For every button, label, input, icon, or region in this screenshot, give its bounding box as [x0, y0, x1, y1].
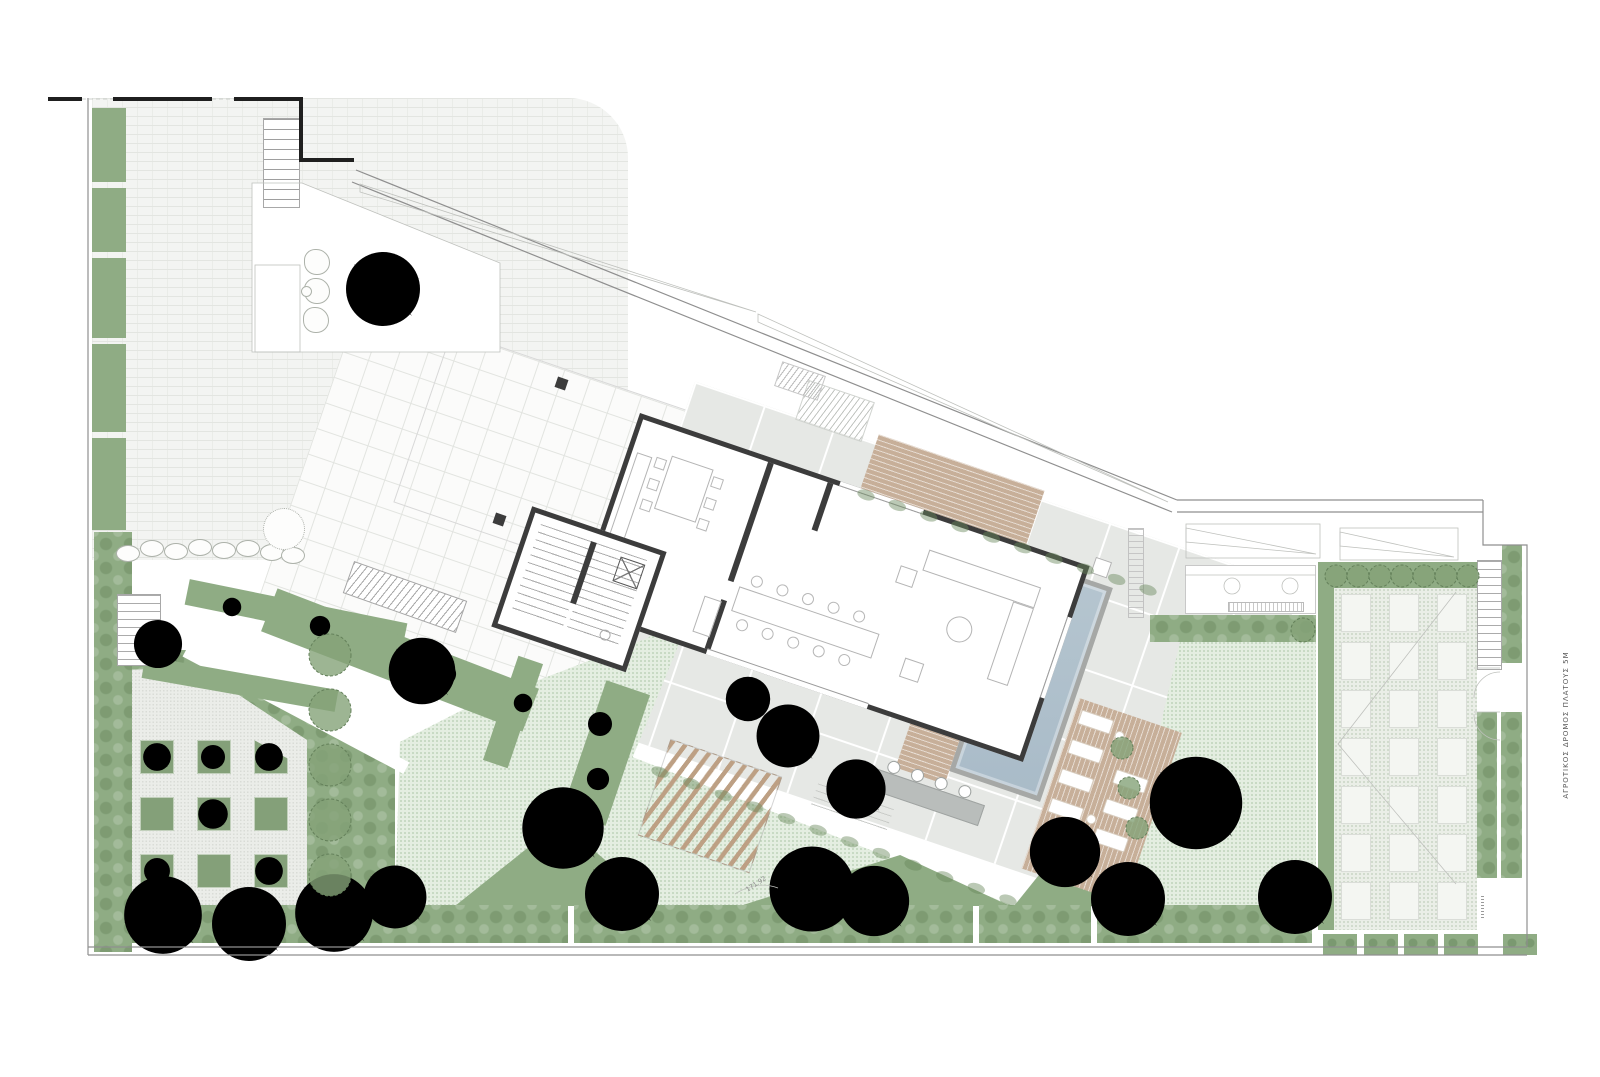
- stepping-stone-3: [188, 539, 212, 556]
- boundary-strip-se-inner: [1477, 712, 1497, 878]
- stepping-stone-5: [236, 540, 260, 557]
- orchard-bed-2-2: [1437, 690, 1467, 728]
- boulder-small: [301, 286, 312, 297]
- mechanical-room: [1185, 565, 1316, 614]
- west-strip-4: [92, 438, 126, 530]
- orchard-bed-1-1: [1389, 642, 1419, 680]
- orchard-bed-4-2: [1437, 786, 1467, 824]
- illegible-vertical-annotation: [1481, 896, 1484, 918]
- orchard-north-band: [1318, 562, 1477, 590]
- stepping-stone-0: [116, 545, 140, 562]
- orchard-bed-3-0: [1341, 738, 1371, 776]
- band-segment-1: [574, 905, 973, 943]
- band-segment-3: [1097, 905, 1312, 943]
- planter-cell-1: [197, 740, 231, 774]
- green-box-1: [1363, 933, 1399, 956]
- orchard-bed-1-0: [1341, 642, 1371, 680]
- orchard-bed-2-0: [1341, 690, 1371, 728]
- orchard-bed-3-1: [1389, 738, 1419, 776]
- orchard-bed-5-1: [1389, 834, 1419, 872]
- upper-stair-hatch: [774, 361, 826, 400]
- west-strip-3: [92, 344, 126, 432]
- green-box-2: [1403, 933, 1439, 956]
- orchard-bed-0-0: [1341, 594, 1371, 632]
- planter-cell-6: [140, 854, 174, 888]
- planter-cell-3: [140, 797, 174, 831]
- stepping-stone-1: [140, 540, 164, 557]
- west-strip-0: [92, 108, 126, 182]
- green-box-0: [1322, 933, 1358, 956]
- road-label: ΑΓΡΟΤΙΚΟΣ ΔΡΟΜΟΣ ΠΛΑΤΟΥΣ 5Μ: [1562, 651, 1570, 798]
- round-bush-driveway: [263, 508, 305, 550]
- planter-cell-8: [254, 854, 288, 888]
- site-plan-canvas: ΑΓΡΟΤΙΚΟΣ ΔΡΟΜΟΣ ΠΛΑΤΟΥΣ 5Μ 171.92: [0, 0, 1600, 1077]
- orchard-bed-6-2: [1437, 882, 1467, 920]
- boundary-strip-ne: [1502, 545, 1522, 663]
- orchard-bed-6-1: [1389, 882, 1419, 920]
- orchard-bed-1-2: [1437, 642, 1467, 680]
- orchard-bed-0-1: [1389, 594, 1419, 632]
- west-strip-2: [92, 258, 126, 338]
- entrance-stair: [263, 118, 300, 208]
- boulder-2: [303, 307, 329, 333]
- orchard-west-strip: [1318, 588, 1334, 930]
- boulder-0: [304, 249, 330, 275]
- stepping-stone-4: [212, 542, 236, 559]
- west-strip-1: [92, 188, 126, 252]
- green-box-4: [1502, 933, 1538, 956]
- west-garden-stair: [117, 594, 161, 666]
- vent-grille: [1228, 602, 1304, 612]
- orchard-bed-0-2: [1437, 594, 1467, 632]
- shrub-strip-east-lawn: [1150, 615, 1316, 642]
- orchard-bed-4-0: [1341, 786, 1371, 824]
- planter-cell-4: [197, 797, 231, 831]
- orchard-bed-5-0: [1341, 834, 1371, 872]
- planter-cell-0: [140, 740, 174, 774]
- band-segment-0: [100, 905, 568, 943]
- orchard-bed-2-1: [1389, 690, 1419, 728]
- boundary-strip-se-outer: [1501, 712, 1522, 878]
- planter-cell-7: [197, 854, 231, 888]
- band-segment-2: [979, 905, 1091, 943]
- orchard-bed-3-2: [1437, 738, 1467, 776]
- green-box-3: [1443, 933, 1479, 956]
- entrance-tree-planter: [358, 265, 404, 311]
- stepping-stone-2: [164, 543, 188, 560]
- planter-cell-5: [254, 797, 288, 831]
- orchard-bed-5-2: [1437, 834, 1467, 872]
- orchard-bed-4-1: [1389, 786, 1419, 824]
- east-boundary-stair: [1477, 560, 1502, 670]
- terrace-step-hatch: [1128, 528, 1144, 618]
- orchard-bed-6-0: [1341, 882, 1371, 920]
